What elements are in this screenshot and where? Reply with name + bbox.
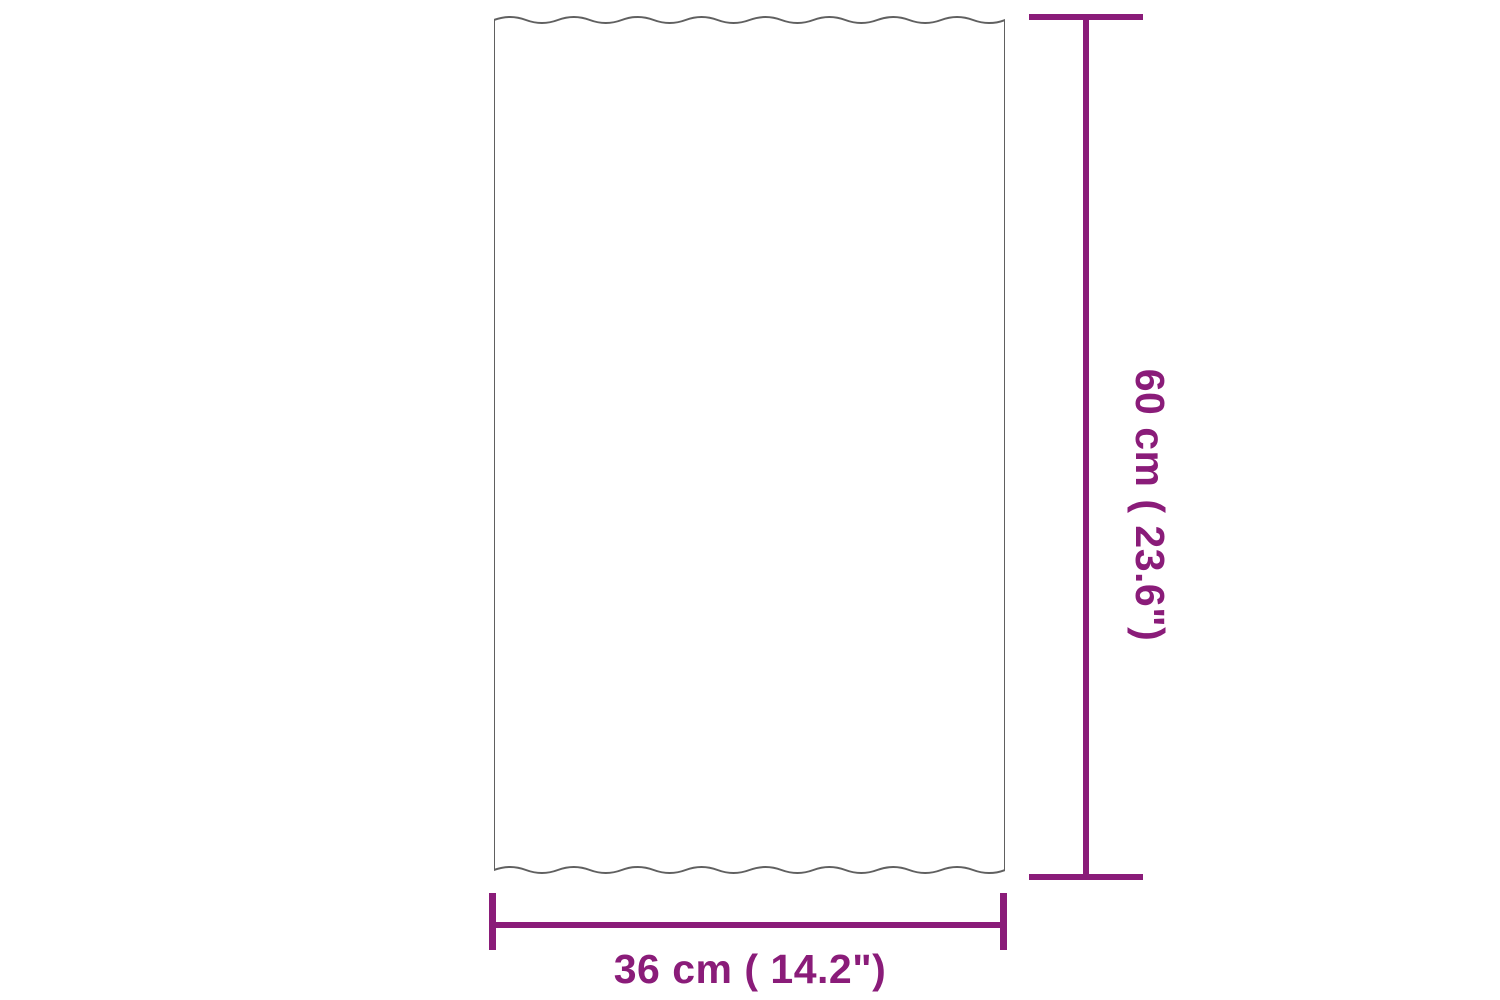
height-dimension-line bbox=[1083, 16, 1089, 877]
height-dimension-label: 60 cm ( 23.6") bbox=[1128, 355, 1172, 655]
width-dimension-line bbox=[492, 922, 1004, 928]
corrugated-panel-outline bbox=[494, 14, 1005, 876]
width-dimension-right-cap bbox=[1000, 893, 1007, 950]
product-dimension-diagram: 60 cm ( 23.6") 36 cm ( 14.2") bbox=[0, 0, 1500, 1000]
height-dimension-bottom-cap bbox=[1029, 874, 1143, 880]
width-dimension-label: 36 cm ( 14.2") bbox=[498, 946, 1002, 992]
